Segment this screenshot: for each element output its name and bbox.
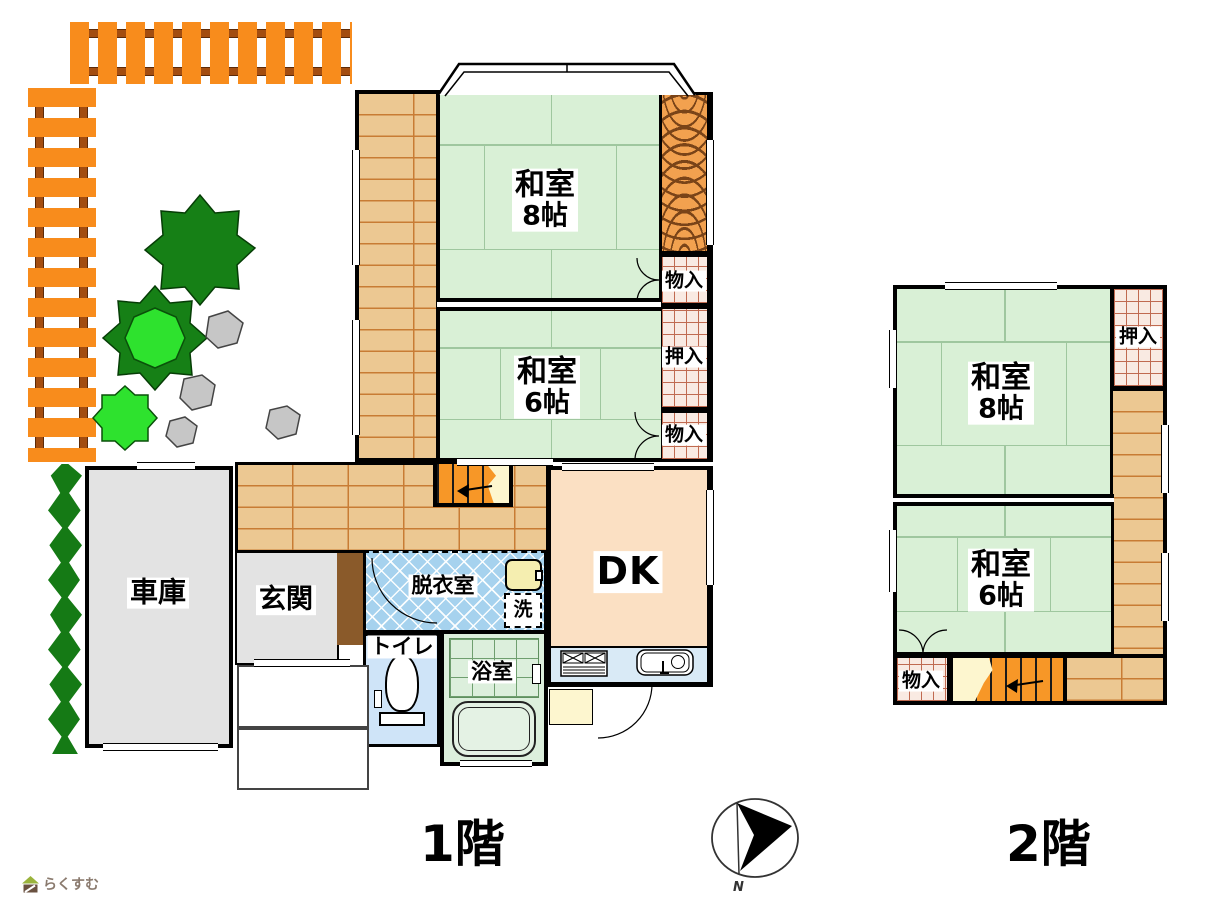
label-dk: DK	[594, 551, 663, 593]
toilet-base	[379, 712, 425, 726]
label-datsuishitsu: 脱衣室	[409, 574, 478, 597]
garden-plants	[85, 185, 385, 455]
corridor-2f-bottom	[1063, 654, 1167, 705]
room-label-washitsu8-2f: 和室 8帖	[968, 362, 1034, 425]
room-bath	[440, 630, 548, 766]
window	[945, 282, 1057, 290]
sink-icon	[636, 649, 694, 676]
stairs-1f	[433, 460, 513, 507]
compass-north-label: N	[733, 880, 744, 895]
compass: N	[706, 795, 806, 900]
fence-planks	[70, 22, 352, 84]
tree-icon	[145, 195, 255, 305]
window	[889, 530, 897, 592]
label-garage: 車庫	[127, 578, 189, 609]
tokonoma-alcove	[659, 92, 713, 254]
toilet-bowl	[385, 654, 419, 712]
veranda-1f	[355, 90, 439, 462]
watermark-logo-icon	[22, 876, 39, 893]
label-monoire-bottom-1f: 物入	[662, 425, 706, 446]
watermark-brand: らくすむ	[43, 874, 99, 894]
window	[562, 463, 654, 471]
window	[352, 150, 360, 265]
window	[457, 458, 553, 466]
tree-inner	[125, 308, 185, 368]
window	[460, 760, 532, 767]
label-bath: 浴室	[468, 660, 516, 683]
stone-icon	[166, 417, 197, 447]
entrance-porch-step	[237, 728, 369, 790]
bath-faucet	[532, 664, 541, 684]
stone-icon	[180, 375, 215, 410]
pergola-fence-top	[70, 22, 352, 84]
window	[1161, 425, 1169, 493]
room-label-washitsu8-1f: 和室 8帖	[512, 169, 578, 232]
label-monoire-top-1f: 物入	[662, 271, 706, 292]
room-label-washitsu6-1f: 和室 6帖	[514, 356, 580, 419]
label-oshiire-1f: 押入	[662, 347, 706, 368]
stone-icon	[266, 406, 300, 439]
toilet-controls	[374, 690, 382, 708]
hedge	[48, 464, 82, 754]
partition-2f	[893, 494, 1114, 506]
label-oshiire-2f: 押入	[1116, 327, 1160, 348]
stair-steps	[437, 464, 496, 503]
label-monoire-2f: 物入	[899, 671, 943, 692]
bathtub	[452, 701, 536, 757]
stair-steps	[975, 658, 1063, 701]
garage-door	[103, 743, 218, 751]
floor2-title: 2階	[1006, 804, 1091, 876]
label-genkan: 玄関	[256, 585, 316, 615]
floorplan-canvas: 和室 8帖 和室 6帖 物入 押入 物入 DK 脱衣室 洗 トイレ 浴室 玄関 …	[0, 0, 1232, 902]
window	[1161, 553, 1169, 621]
window	[889, 330, 897, 388]
bush-icon	[93, 386, 157, 450]
window	[352, 320, 360, 435]
watermark: らくすむ	[22, 874, 99, 894]
entrance-porch-step	[237, 665, 369, 728]
window	[706, 140, 714, 245]
shoe-cabinet	[337, 553, 363, 645]
floor1-title: 1階	[420, 804, 505, 876]
stairs-2f	[949, 654, 1067, 705]
corridor-2f	[1110, 388, 1167, 658]
stone-icon	[206, 311, 243, 348]
label-toilet: トイレ	[368, 635, 437, 658]
washbasin	[505, 559, 542, 591]
partition-1f	[437, 298, 661, 311]
room-label-washitsu6-2f: 和室 6帖	[968, 549, 1034, 612]
label-laundry: 洗	[510, 600, 535, 621]
backdoor-step	[549, 689, 593, 725]
window	[706, 490, 714, 585]
entrance-door	[254, 659, 350, 667]
window	[137, 462, 195, 470]
stove-icon	[560, 650, 608, 677]
